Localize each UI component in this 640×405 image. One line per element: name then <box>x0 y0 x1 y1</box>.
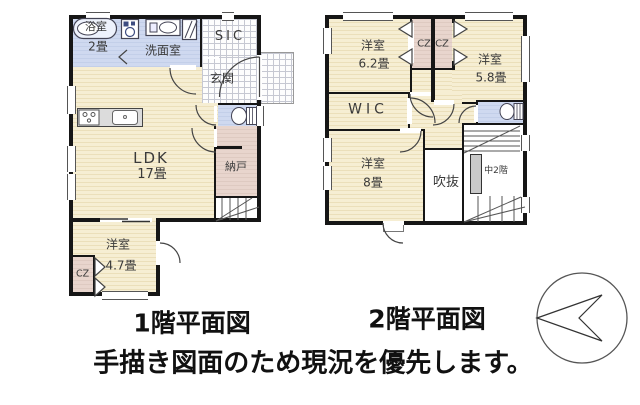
hand-drawn-note: 手描き図面のため現況を優先します。 <box>93 350 532 379</box>
compass-north-icon <box>537 273 627 363</box>
bath-folding-door-icon <box>119 50 127 64</box>
folding-door-icon <box>399 49 412 65</box>
label-bedroom58-size: 5.8畳 <box>475 71 506 84</box>
label-closet-1f: CZ <box>76 269 86 280</box>
label-bath: 浴室 <box>85 21 107 33</box>
label-bath-size: 2畳 <box>88 40 108 53</box>
label-bedroom58: 洋室 <box>478 53 502 66</box>
bedroom8-door-arc <box>400 131 421 152</box>
label-ldk: LDK <box>133 150 169 167</box>
kitchen-stove-icon <box>79 110 99 125</box>
label-ldk-size: 17畳 <box>137 168 167 182</box>
label-bedroom62-size: 6.2畳 <box>358 57 389 70</box>
label-bedroom8: 洋室 <box>361 157 385 170</box>
sliding-door-marks <box>100 219 150 222</box>
label-bedroom8-size: 8畳 <box>363 176 383 189</box>
folding-door-icon <box>454 49 467 65</box>
label-closet-2f-left: CZ <box>417 39 431 50</box>
label-void: 吹抜 <box>433 176 459 190</box>
label-storage: 納戸 <box>225 161 247 173</box>
label-shoe-closet: SIC <box>215 30 245 44</box>
bedroom58-door-arc <box>433 104 454 125</box>
floorplan-page: 浴室 2畳 洗面室 SIC 玄関 LDK 17畳 納戸 洋室 4.7畳 CZ 洋… <box>0 0 640 405</box>
label-entrance: 玄関 <box>210 72 234 85</box>
label-closet-2f-right: CZ <box>435 39 449 50</box>
storage-door-arc <box>192 128 216 152</box>
balcony-door-arc <box>383 223 403 243</box>
label-washroom: 洗面室 <box>145 44 181 57</box>
stairs-1f-steps <box>216 198 259 221</box>
toilet1f-door-arc <box>196 105 216 125</box>
folding-door-icon <box>95 278 105 296</box>
toilet2f-door-arc <box>459 106 476 123</box>
folding-door-icon <box>399 21 412 37</box>
wic-door-arc <box>410 98 435 123</box>
floorplan-linework <box>0 0 640 405</box>
label-bedroom47: 洋室 <box>106 238 130 251</box>
toilet-icon-2f <box>500 104 523 120</box>
kitchen-sink-icon <box>113 111 138 125</box>
washing-machine-icon <box>122 20 139 39</box>
label-mezzanine: 中2階 <box>484 167 508 177</box>
washroom-door-arc <box>170 68 196 94</box>
caption-floor2: 2階平面図 <box>368 305 485 333</box>
folding-door-icon <box>95 258 105 276</box>
folding-door-icon <box>454 21 467 37</box>
toilet-icon-1f <box>232 108 257 125</box>
caption-floor1: 1階平面図 <box>133 309 250 337</box>
label-bedroom62: 洋室 <box>361 39 385 52</box>
window-icon <box>183 20 198 40</box>
bedroom47-door-arc <box>160 243 180 263</box>
bedroom62-door-arc <box>410 94 433 117</box>
door-arcs <box>119 50 476 263</box>
vanity-sink-icon <box>146 20 180 36</box>
label-wic: WIC <box>348 102 388 117</box>
label-bedroom47-size: 4.7畳 <box>105 259 136 272</box>
